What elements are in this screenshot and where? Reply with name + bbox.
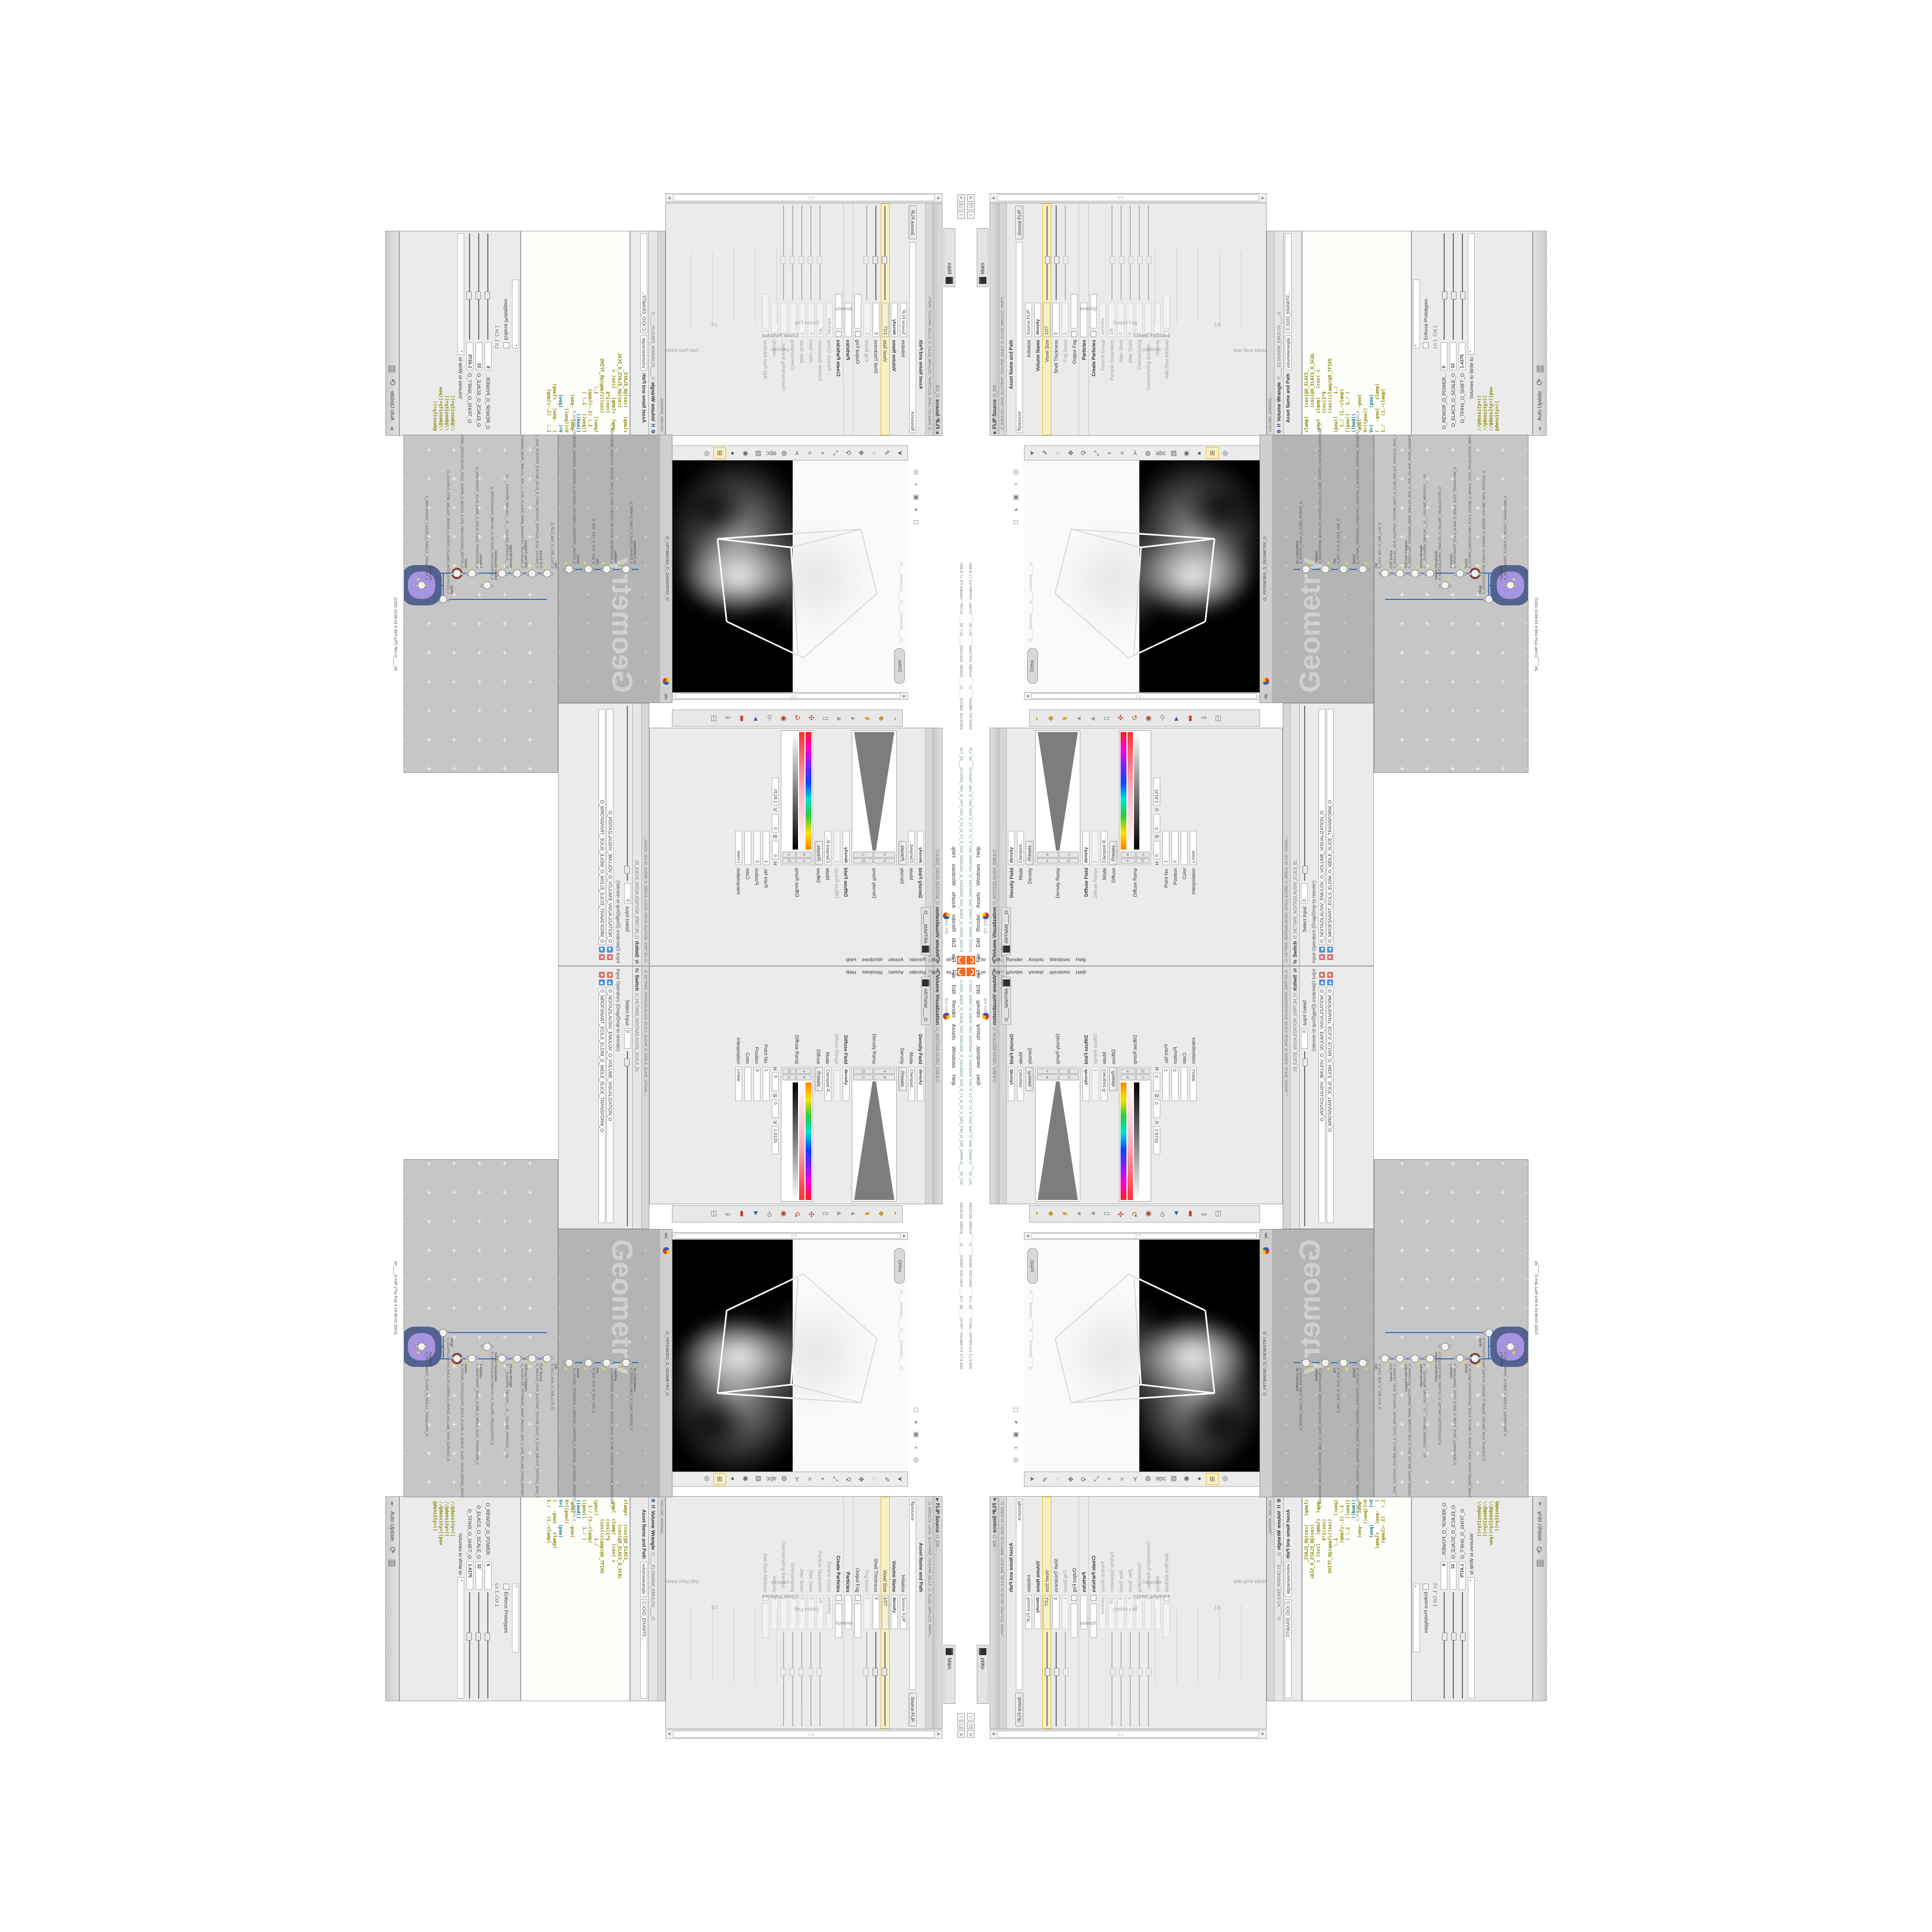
toolbar-icon[interactable]: ⊞ xyxy=(1206,1473,1219,1485)
menu-bar-bottom[interactable]: File Edit Render Assets Windows Help xyxy=(772,957,954,963)
flip-type-button[interactable]: Source FLIP xyxy=(909,206,917,239)
param-field[interactable]: density xyxy=(1008,831,1015,865)
vex-code-editor[interactable]: clamp( (cos(@O_ELACS_ (cos(@O_ELACS_O_SC… xyxy=(521,1496,630,1701)
ramp-flip-icon[interactable]: △ xyxy=(1059,1074,1079,1080)
reorder-icon[interactable]: ◀ xyxy=(1327,947,1333,953)
toolbar-icon[interactable]: ⊞ xyxy=(713,1473,726,1485)
shelf-up-icon[interactable]: ⇧ xyxy=(982,1005,989,1013)
toolbar-icon[interactable]: ✥ xyxy=(1064,447,1077,459)
graph-node[interactable]: PolyWireO_EMARFERIW_NOGYLOP_EREHPS_EBUC_… xyxy=(603,565,611,573)
node-flag[interactable] xyxy=(1308,1367,1311,1370)
select-input-field[interactable]: 0 xyxy=(624,1028,631,1049)
shelf-tool-icon[interactable]: ◂ xyxy=(1072,712,1086,724)
graph-node[interactable]: an_CubeSphereO_EREHPS_EBUC_O_CUBE_SPHERE… xyxy=(1302,1359,1310,1367)
param-field[interactable]: Linear xyxy=(1190,831,1197,865)
presets-button[interactable]: Presets xyxy=(1026,1067,1034,1091)
tab-main[interactable]: Main xyxy=(943,228,955,287)
toolbar-icon[interactable]: ◌ xyxy=(868,1473,881,1485)
ramp-widget[interactable]: ＋✕◫△ xyxy=(1119,730,1151,865)
node-flag[interactable] xyxy=(497,566,500,569)
auto-update-button[interactable]: Auto Update xyxy=(390,1511,396,1541)
scroll-right-icon[interactable]: ▶ xyxy=(1260,196,1266,200)
select-input-slider[interactable] xyxy=(1304,706,1305,881)
node-flag[interactable] xyxy=(621,562,624,565)
param-field[interactable]: Clamped... xyxy=(1017,1067,1024,1101)
hue-field[interactable]: 0 xyxy=(772,841,779,859)
wrangle-param-slider[interactable] xyxy=(470,1592,471,1699)
toolbar-icon[interactable]: ◌ xyxy=(868,447,881,459)
wrangle-param-field[interactable]: 1.4375 xyxy=(1459,342,1466,370)
ramp-widget[interactable]: ＋✕◫△ xyxy=(852,1067,897,1202)
camera-path-label[interactable]: O____AREMAC____O____CAMERA____O xyxy=(898,498,904,642)
node-flag[interactable] xyxy=(1365,1367,1367,1370)
refresh-icon[interactable]: ⟳ xyxy=(1534,378,1545,385)
param-field[interactable]: 1 xyxy=(833,831,840,865)
param-field[interactable]: 1 xyxy=(780,303,787,337)
param-field[interactable]: Linear xyxy=(1190,1067,1197,1101)
network1-tab[interactable]: O_YRTEMOEG_O_GEOMETRY_O xyxy=(663,440,670,601)
param-field[interactable]: 3 xyxy=(1052,1595,1059,1629)
toolbar-icon[interactable]: ⅄ xyxy=(791,1473,803,1485)
graph-node[interactable]: TransformO_MROFSNART_ECILS_ELGIM_O_MIDLE… xyxy=(468,1355,476,1363)
param-field[interactable]: density xyxy=(843,1067,850,1101)
graph-node[interactable]: an_CubeSphereO_EREHPS_EBUC_O_CUBE_SPHERE… xyxy=(622,565,630,573)
shelf-tool-icon[interactable]: ↺ xyxy=(1128,712,1141,724)
wrangle-name-field[interactable]: volumewrangle xyxy=(641,335,648,370)
network-editor-sop[interactable]: ++++++++ ++++++++ ++++++++ ++++++++ ++++… xyxy=(1374,1159,1528,1497)
param-field[interactable]: 0 xyxy=(1172,1067,1179,1101)
node-flag[interactable] xyxy=(1432,1363,1435,1366)
graph-node[interactable]: FileO_BDV_ELIF_O_FILE_VDB_O xyxy=(584,1359,592,1367)
scroll-left-icon[interactable]: ◀ xyxy=(990,196,996,200)
param-field[interactable]: 1 xyxy=(1162,1067,1169,1101)
select-input-field[interactable]: 0 xyxy=(1301,883,1308,904)
toolbar-icon[interactable]: ➤ xyxy=(894,1473,906,1485)
node-flag[interactable] xyxy=(584,562,587,565)
ramp-flip-icon[interactable]: △ xyxy=(782,1074,796,1080)
node-flag[interactable] xyxy=(482,578,485,581)
presets-button[interactable]: Presets xyxy=(1026,841,1034,865)
node-flag[interactable] xyxy=(1402,1363,1404,1366)
tab-main[interactable]: Main xyxy=(943,1645,955,1704)
graph-node[interactable]: SwitchO_HCTIWS_YRTEMOEG_LANRETXE_LANRETN… xyxy=(1359,1359,1367,1367)
camera-path-label[interactable]: O____AREMAC____O____CAMERA____O xyxy=(898,1290,904,1434)
delete-point-icon[interactable]: ✕ xyxy=(1121,852,1136,858)
switch-input-item[interactable]: ✖ ◀ O_MROFSNART_ECILS_ELDIM_O_MIDLE_SLIC… xyxy=(1326,709,1334,960)
param-slider[interactable] xyxy=(1139,206,1140,300)
frame-icon[interactable]: ◻ xyxy=(913,1407,919,1414)
ortho-camera-menu[interactable]: Ortho xyxy=(894,648,905,684)
ramp-mode-icon[interactable]: ◫ xyxy=(782,1069,796,1074)
param-slider[interactable] xyxy=(876,206,877,300)
toolbar-icon[interactable]: ➤ xyxy=(1026,1473,1038,1485)
select-input-slider[interactable] xyxy=(627,1051,628,1226)
wrangle-param-slider[interactable] xyxy=(1453,1592,1454,1699)
wrangle-param-field[interactable]: 32 xyxy=(1450,342,1457,370)
graph-node[interactable]: TransformO_MROFSNART_TLUSER_O_RESULT_TRA… xyxy=(1506,581,1514,589)
param-field[interactable]: Source FLIP xyxy=(1025,1595,1032,1629)
delete-point-icon[interactable]: ✕ xyxy=(874,852,896,858)
param-field[interactable]: 1 xyxy=(1092,1067,1099,1101)
param-field[interactable]: particles xyxy=(1099,1595,1106,1629)
shelf-tool-icon[interactable]: ▰ xyxy=(1058,712,1072,724)
wrangle-param-field[interactable]: 32 xyxy=(475,1562,482,1590)
toolbar-icon[interactable]: ⤡ xyxy=(1090,1473,1103,1485)
param-field[interactable]: 1/27 xyxy=(1043,303,1050,337)
toolbar-icon[interactable]: ◌ xyxy=(1051,447,1064,459)
houdini-logo[interactable] xyxy=(967,968,975,976)
param-field[interactable]: 1 xyxy=(780,1595,787,1629)
auto-update-button[interactable]: Auto Update xyxy=(390,391,396,421)
shelf-tool-icon[interactable]: ✣ xyxy=(804,1207,818,1220)
sphere-icon[interactable]: ◕ xyxy=(1014,1419,1018,1426)
toolbar-icon[interactable]: ⅄ xyxy=(1129,1473,1141,1485)
remove-input-icon[interactable]: ✖ xyxy=(599,954,605,960)
node-flag[interactable] xyxy=(1432,566,1435,569)
checkbox[interactable] xyxy=(1071,1595,1077,1601)
graph-node[interactable]: VDB from PolygonsO_SNOGYLOP_YRTEMOEG_MOR… xyxy=(1411,1355,1419,1363)
flip-scrollbar[interactable]: ◀ ⠿⠿ ▶ xyxy=(665,193,942,202)
node-flag[interactable] xyxy=(1491,1337,1494,1340)
checkbox[interactable] xyxy=(1091,1595,1096,1601)
wrangle-path-field[interactable]: C:/O/O_ERAWTF... xyxy=(1285,1599,1292,1699)
tab-mantra[interactable]: ARTNAM____O xyxy=(1001,907,1011,955)
param-field[interactable] xyxy=(744,1067,751,1101)
toolbar-icon[interactable]: ● xyxy=(726,447,739,459)
shelf-tool-icon[interactable]: ◗ xyxy=(888,712,902,724)
sphere-icon[interactable]: ◕ xyxy=(1014,506,1018,513)
reorder-icon[interactable]: ◀ xyxy=(599,979,605,985)
graph-node[interactable]: VDB from PolygonsO_SNOGYLOP_YRTEMOEG_MOR… xyxy=(513,569,521,577)
presets-button[interactable]: Presets xyxy=(815,1067,823,1091)
ramp-mode-icon[interactable]: ◫ xyxy=(1059,858,1079,864)
param-slider[interactable] xyxy=(820,1632,821,1726)
wrangle-param-field[interactable]: 6 xyxy=(1440,342,1447,370)
shelf-tool-icon[interactable]: ◆ xyxy=(1044,1207,1058,1220)
toolbar-icon[interactable]: ◉ xyxy=(739,1473,752,1485)
param-slider[interactable] xyxy=(820,206,821,300)
scroll-thumb[interactable]: ⠿⠿ xyxy=(997,194,1258,201)
checkbox[interactable] xyxy=(855,1595,861,1601)
reorder-icon[interactable]: ◀ xyxy=(607,947,613,953)
node-flag[interactable] xyxy=(1512,1351,1515,1354)
graph-node[interactable]: FileO_BDV_ELIF_O_FILE_VDB_O xyxy=(1340,1359,1348,1367)
toolbar-icon[interactable]: ▧ xyxy=(1167,1473,1180,1485)
houdini-logo[interactable] xyxy=(967,956,975,964)
param-slider[interactable] xyxy=(784,206,785,300)
frame-icon[interactable]: ◻ xyxy=(1013,1407,1019,1414)
shelf-tool-icon[interactable]: ▭ xyxy=(1100,1207,1114,1220)
shelf-tool-icon[interactable]: ▮ xyxy=(735,712,749,724)
sat-field[interactable]: 0 xyxy=(772,1100,779,1118)
node-flag[interactable] xyxy=(528,566,530,569)
param-field[interactable]: 3 xyxy=(873,303,880,337)
scroll-thumb[interactable]: ⠿⠿ xyxy=(673,194,934,201)
enforce-checkbox[interactable] xyxy=(503,342,509,348)
node-flag[interactable] xyxy=(1447,578,1450,581)
toolbar-icon[interactable]: ◌ xyxy=(1051,1473,1064,1485)
switch-input-item[interactable]: ✖ ◀ O_MROFSNART_ECILS_ELDIM_O_MIDLE_SLIC… xyxy=(1326,972,1334,1223)
param-field[interactable] xyxy=(1090,294,1097,328)
network-editor-obj[interactable]: O_YRTEMOEG_O_GEOMETRY_O obj Geometry an_… xyxy=(1260,1229,1374,1497)
ramp-widget[interactable]: ＋✕◫△ xyxy=(781,730,813,865)
graph-node[interactable]: FileO_BDV_ELIF_O_FILE_VDB_O xyxy=(584,565,592,573)
houdini-logo[interactable] xyxy=(957,956,965,964)
param-field[interactable] xyxy=(835,294,842,328)
flip-name-field[interactable]: flipsource xyxy=(909,242,916,433)
shelf-tool-icon[interactable]: ▭ xyxy=(1100,712,1114,724)
shelf-tool-icon[interactable]: ◗ xyxy=(1030,1207,1044,1220)
shelf-tool-icon[interactable]: ⚲ xyxy=(763,712,777,724)
graph-node[interactable]: Volume WrangleO___ELGNARW_EMULOV___O___V… xyxy=(1426,569,1434,577)
scroll-left-icon[interactable]: ◀ xyxy=(936,1732,942,1737)
toolbar-icon[interactable]: abc xyxy=(1154,447,1167,459)
flip-pane-tab[interactable]: _O_EMULOV_LEHS_ELCITRAP_TICILPMI_DIULF_O… xyxy=(999,203,1007,435)
network1-grid[interactable]: Geometry an_CubeSphereO_EREHPS_EBUC_O_CU… xyxy=(559,435,660,702)
flip-pane-tab[interactable]: _O_EMULOV_LEHS_ELCITRAP_TICILPMI_DIULF_O… xyxy=(999,1497,1007,1729)
collapse-arrow-icon[interactable]: ▸ xyxy=(935,1498,941,1501)
param-field[interactable] xyxy=(1071,1604,1078,1638)
node-flag[interactable] xyxy=(1417,566,1419,569)
flip-scrollbar[interactable]: ◀ ⠿⠿ ▶ xyxy=(665,1730,942,1739)
param-field[interactable]: density xyxy=(1034,1595,1041,1629)
shelf-tool-icon[interactable]: ◉ xyxy=(1141,712,1155,724)
shelf-tool-icon[interactable]: ◂ xyxy=(846,1207,860,1220)
viewport-canvas[interactable]: O____AREMAC____O____CAMERA____O Ortho xyxy=(668,460,908,692)
switch-input-item[interactable]: ✖ ◀ O_NOITAZILAUSIV_EMULOV_O_VOLUME_VISU… xyxy=(1318,709,1326,960)
shelf-down-icon[interactable]: ⇩ xyxy=(943,927,950,935)
ramp-mode-icon[interactable]: ◫ xyxy=(1136,858,1150,864)
graph-node[interactable]: TransformO_MROFSNART_ECILS_ELGIM_O_MIDLE… xyxy=(1456,569,1464,577)
ramp-flip-icon[interactable]: △ xyxy=(1136,1074,1150,1080)
node-flag[interactable] xyxy=(584,1367,587,1370)
graph-node[interactable]: SwitchO_HCTIWS_NOITAZILAUSIV_ECILS_ELOHW… xyxy=(1471,569,1479,577)
viewport-canvas[interactable]: O____AREMAC____O____CAMERA____O Ortho xyxy=(1024,1240,1264,1472)
node-flag[interactable] xyxy=(1327,1367,1330,1370)
param-slider[interactable] xyxy=(1139,1632,1140,1726)
shelf-tool-icon[interactable]: ◉ xyxy=(777,712,791,724)
param-field[interactable]: Clamped R... xyxy=(824,831,831,865)
param-slider[interactable] xyxy=(793,1632,794,1726)
viewport-scrollbar[interactable]: ◀⠿⠿▶ xyxy=(1024,1232,1264,1240)
shelf-tool-icon[interactable]: ◗ xyxy=(888,1207,902,1220)
shelf-up-icon[interactable]: ⇧ xyxy=(943,1005,950,1013)
toolbar-icon[interactable]: ⟳ xyxy=(1077,1473,1090,1485)
scroll-left-icon[interactable]: ◀ xyxy=(990,1732,996,1737)
param-slider[interactable] xyxy=(1121,1632,1122,1726)
shelf-tool-icon[interactable]: ◗ xyxy=(1030,712,1044,724)
graph-node[interactable]: PolyWireO_EMARFERIW_NOGYLOP_EREHPS_EBUC_… xyxy=(1321,1359,1329,1367)
flip-name-field[interactable]: flipsource xyxy=(909,1499,916,1690)
wrangle-param-field[interactable]: 1.4375 xyxy=(1459,1562,1466,1590)
volumes-field[interactable]: * xyxy=(457,233,464,355)
toolbar-icon[interactable]: ⟳ xyxy=(842,1473,855,1485)
param-field[interactable]: Clamped... xyxy=(908,831,915,865)
param-field[interactable]: 1 xyxy=(863,303,870,337)
param-field[interactable]: 1 xyxy=(1145,1595,1152,1629)
node-flag[interactable] xyxy=(1462,1363,1465,1366)
flip-type-button[interactable]: Source FLIP xyxy=(1015,206,1023,239)
graph-node[interactable]: TransformO_MROFSNART_TLUSER_O_RESULT_TRA… xyxy=(418,581,426,589)
node-flag[interactable] xyxy=(1308,562,1311,565)
viewport-scrollbar[interactable]: ◀⠿⠿▶ xyxy=(668,1232,908,1240)
wrangle-param-field[interactable]: 1.4375 xyxy=(466,342,473,370)
wrangle-path-field[interactable]: C:/O/O_ERAWTF... xyxy=(641,1599,648,1699)
graph-node[interactable]: FLIP SourceO_EMULOV_LEHS_ELCITRAP_TICILP… xyxy=(1396,1355,1404,1363)
node-flag[interactable] xyxy=(513,566,515,569)
graph-node[interactable]: SwitchO_HCTIWS_NOITAZILAUSIV_ECILS_ELOHW… xyxy=(453,569,461,577)
network-editor-sop[interactable]: ++++++++ ++++++++ ++++++++ ++++++++ ++++… xyxy=(1374,435,1528,773)
select-input-field[interactable]: 0 xyxy=(1301,1028,1308,1049)
vex-code-editor[interactable]: clamp( (cos(@O_ELACS_ (cos(@O_ELACS_O_SC… xyxy=(1302,1496,1411,1701)
shelf-tool-icon[interactable]: ↺ xyxy=(791,1207,804,1220)
network1-grid[interactable]: Geometry an_CubeSphereO_EREHPS_EBUC_O_CU… xyxy=(1272,1230,1373,1497)
shelf-tool-icon[interactable]: ◉ xyxy=(777,1207,791,1220)
param-slider[interactable] xyxy=(1130,206,1131,300)
param-slider[interactable] xyxy=(885,206,886,300)
toolbar-icon[interactable]: ➤ xyxy=(894,447,906,459)
toolbar-icon[interactable]: ⌖ xyxy=(1103,447,1116,459)
shelf-tool-icon[interactable]: ↺ xyxy=(791,712,804,724)
bullseye-icon[interactable]: ◎ xyxy=(913,468,919,475)
param-slider[interactable] xyxy=(885,1632,886,1726)
param-field[interactable] xyxy=(1071,294,1078,328)
ramp-mode-icon[interactable]: ◫ xyxy=(853,858,874,864)
volumes-field[interactable]: * xyxy=(1468,233,1475,355)
reorder-icon[interactable]: ◀ xyxy=(607,979,613,985)
graph-node[interactable]: SwitchO_HCTIWS_NOITAZILAUSIV_ECILS_ELOHW… xyxy=(453,1355,461,1363)
graph-node[interactable]: Volume VisualizationO_NOITAZILAUSIV_EMUL… xyxy=(1441,581,1449,589)
shelf-tool-icon[interactable]: ◆ xyxy=(1044,712,1058,724)
obj-context[interactable]: obj xyxy=(1262,1247,1269,1254)
param-field[interactable]: density xyxy=(891,303,898,337)
param-field[interactable] xyxy=(762,294,769,328)
add-point-icon[interactable]: ＋ xyxy=(797,858,812,864)
pane-grip-icon[interactable]: ◂▸ xyxy=(1537,1501,1543,1506)
node-flag[interactable] xyxy=(1491,592,1494,595)
group-field[interactable]: * xyxy=(1413,1584,1420,1652)
viewport-canvas[interactable]: O____AREMAC____O____CAMERA____O Ortho xyxy=(1024,460,1264,692)
node-flag[interactable] xyxy=(482,1351,485,1354)
gear-icon[interactable]: ⚙ xyxy=(1276,429,1282,434)
graph-node[interactable]: MergeO_ECAFRUS_HTIW_EMULOV_EGREM_O_MERGE… xyxy=(1485,1329,1493,1337)
toolbar-icon[interactable]: ▧ xyxy=(752,447,765,459)
shelf-tool-icon[interactable]: ✑ xyxy=(721,712,735,724)
shelf-tool-icon[interactable]: ⚲ xyxy=(1155,712,1169,724)
wrangle-param-slider[interactable] xyxy=(1462,1592,1463,1699)
graph-node[interactable]: MergeO_ECAFRUS_HTIW_EMULOV_EGREM_O_MERGE… xyxy=(1485,595,1493,603)
add-point-icon[interactable]: ＋ xyxy=(1121,1069,1136,1074)
param-field[interactable]: 1/27 xyxy=(882,1595,889,1629)
scroll-left-icon[interactable]: ◀ xyxy=(936,196,942,200)
sat-field[interactable]: 0 xyxy=(1153,1100,1160,1118)
network1-tab[interactable]: O_YRTEMOEG_O_GEOMETRY_O xyxy=(1262,1331,1269,1492)
toolbar-icon[interactable]: ⅄ xyxy=(1129,447,1141,459)
camera-path-label[interactable]: O____AREMAC____O____CAMERA____O xyxy=(1028,498,1034,642)
param-field[interactable]: 3 xyxy=(1052,303,1059,337)
node-flag[interactable] xyxy=(1447,1351,1450,1354)
ramp-mode-icon[interactable]: ◫ xyxy=(1136,1069,1150,1074)
refresh-icon[interactable]: ⟳ xyxy=(387,1547,398,1554)
param-field[interactable]: density xyxy=(1082,831,1089,865)
shelf-tool-icon[interactable]: ◫ xyxy=(707,1207,721,1220)
remove-input-icon[interactable]: ✖ xyxy=(599,972,605,978)
toolbar-icon[interactable]: ✎ xyxy=(1038,447,1051,459)
wrangle-tab[interactable]: VOLUME_WRANGL... xyxy=(1267,1497,1275,1701)
ramp-flip-icon[interactable]: △ xyxy=(1059,852,1079,858)
node-flag[interactable] xyxy=(438,1337,441,1340)
toolbar-icon[interactable]: ✎ xyxy=(1038,1473,1051,1485)
param-field[interactable]: 1 xyxy=(1062,1595,1069,1629)
wrangle-param-field[interactable]: 32 xyxy=(475,342,482,370)
presets-button[interactable]: Presets xyxy=(1109,841,1117,865)
houdini-logo[interactable] xyxy=(957,968,965,976)
pin-icon[interactable]: ⌖ xyxy=(1014,1444,1018,1452)
ramp-flip-icon[interactable]: △ xyxy=(853,852,874,858)
toolbar-icon[interactable]: ⌗ xyxy=(803,447,816,459)
ramp-flip-icon[interactable]: △ xyxy=(782,852,796,858)
switch-input-item[interactable]: ✖ ◀ O_NOITAZILAUSIV_EMULOV_O_VOLUME_VISU… xyxy=(606,972,614,1223)
param-slider[interactable] xyxy=(1065,206,1066,300)
wrangle-param-slider[interactable] xyxy=(479,233,480,340)
gear-icon[interactable]: ⚙ xyxy=(650,1498,656,1503)
tab-mantra[interactable]: ARTNAM____O xyxy=(1001,977,1011,1025)
network-editor-obj[interactable]: O_YRTEMOEG_O_GEOMETRY_O obj Geometry an_… xyxy=(558,435,672,703)
toolbar-icon[interactable]: ◉ xyxy=(1180,1473,1193,1485)
toolbar-icon[interactable]: ⊞ xyxy=(1206,447,1219,459)
shelf-tool-icon[interactable]: ▲ xyxy=(749,712,763,724)
cube-icon[interactable]: ▣ xyxy=(913,493,919,501)
node-flag[interactable] xyxy=(565,562,567,565)
ortho-camera-menu[interactable]: Ortho xyxy=(1027,648,1038,684)
graph-node[interactable]: TransformO_MROFSNART_ECILS_ELGIM_O_MIDLE… xyxy=(1456,1355,1464,1363)
node-flag[interactable] xyxy=(621,1367,624,1370)
presets-button[interactable]: Presets xyxy=(815,841,823,865)
toolbar-icon[interactable]: ⌖ xyxy=(1103,1473,1116,1485)
tab-mantra[interactable]: ARTNAM____O xyxy=(921,977,931,1025)
graph-node[interactable]: ClipO_PILC_BDV_O_VDB_CLIP_O xyxy=(543,1355,551,1363)
reorder-icon[interactable]: ◀ xyxy=(1319,979,1325,985)
param-field[interactable]: density xyxy=(1034,303,1041,337)
param-field[interactable]: 1 xyxy=(1162,831,1169,865)
flip-pane-tab[interactable]: _O_EMULOV_LEHS_ELCITRAP_TICILPMI_DIULF_O… xyxy=(925,1497,933,1729)
ramp-widget[interactable]: ＋✕◫△ xyxy=(1035,1067,1080,1202)
hue-field[interactable]: 0 xyxy=(1153,1073,1160,1091)
auto-update-button[interactable]: Auto Update xyxy=(1537,391,1543,421)
node-flag[interactable] xyxy=(543,566,545,569)
viewport-scrollbar[interactable]: ◀⠿⠿▶ xyxy=(1024,692,1264,700)
wrangle-name-field[interactable]: volumewrangle xyxy=(1285,335,1292,370)
delete-point-icon[interactable]: ✕ xyxy=(797,1074,812,1080)
param-field[interactable]: density xyxy=(1082,1067,1089,1101)
node-flag[interactable] xyxy=(513,1363,515,1366)
remove-input-icon[interactable]: ✖ xyxy=(607,972,613,978)
scroll-thumb[interactable]: ⠿⠿ xyxy=(673,1731,934,1738)
sat-field[interactable]: 0 xyxy=(1153,814,1160,832)
shelf-up-icon[interactable]: ⇧ xyxy=(982,919,989,927)
tab-main[interactable]: Main xyxy=(977,1645,989,1704)
shelf-tool-icon[interactable]: ◫ xyxy=(707,712,721,724)
node-flag[interactable] xyxy=(417,1351,420,1354)
group-field[interactable]: * xyxy=(512,280,519,348)
collapse-arrow-icon[interactable]: ▸ xyxy=(992,431,998,434)
viewport-canvas[interactable]: O____AREMAC____O____CAMERA____O Ortho xyxy=(668,1240,908,1472)
toolbar-icon[interactable]: ▧ xyxy=(1167,447,1180,459)
frame-icon[interactable]: ◻ xyxy=(1013,518,1019,525)
bullseye-icon[interactable]: ◎ xyxy=(1013,468,1019,475)
param-slider[interactable] xyxy=(1148,1632,1149,1726)
shelf-down-icon[interactable]: ⇩ xyxy=(982,997,989,1005)
